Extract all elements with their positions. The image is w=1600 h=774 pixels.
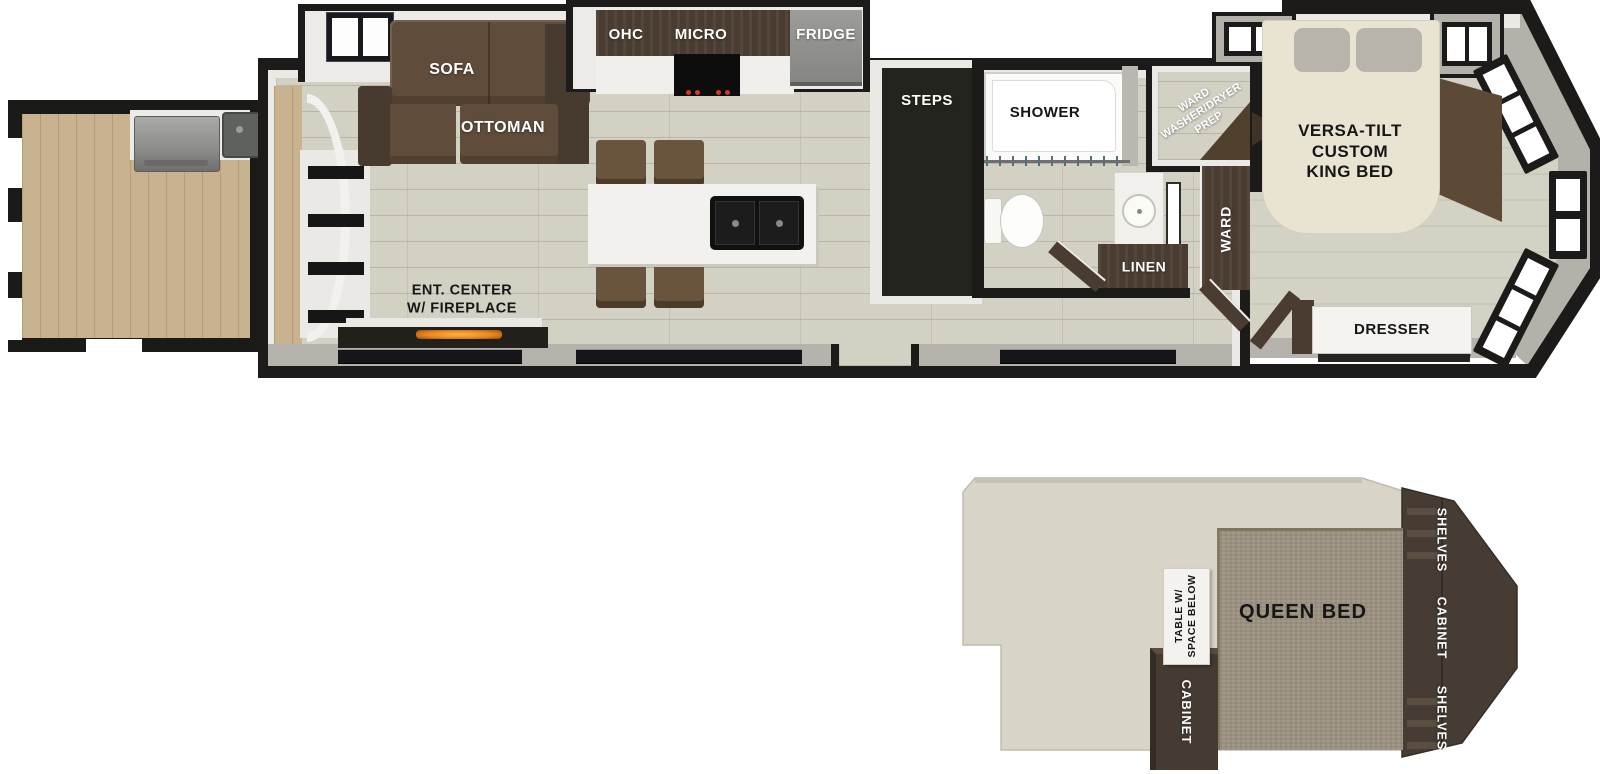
entry-door-panel [308, 214, 364, 227]
vanity-sink-drain [1137, 209, 1142, 214]
toilet-bowl [1000, 194, 1044, 248]
fireplace-flame [416, 330, 502, 339]
doorway-post [911, 344, 919, 366]
bay-window-mid [1549, 171, 1587, 259]
stove-burner [686, 90, 691, 95]
dresser [1312, 306, 1472, 354]
stove-burner [695, 90, 700, 95]
loft-cabinet [1150, 648, 1218, 770]
bathroom-wall [976, 288, 1190, 298]
deck-rail-gap [8, 298, 22, 340]
shower-curtain-hooks [986, 156, 1128, 166]
window [1000, 349, 1176, 364]
chair [654, 140, 704, 186]
steps [882, 68, 972, 296]
deck-rail-gap [8, 138, 22, 188]
overhead-cabinet [596, 10, 794, 56]
mirror [1166, 182, 1181, 246]
deck-rail-gap [8, 222, 22, 272]
fridge [790, 10, 862, 86]
linen-cabinet [1098, 244, 1188, 288]
deck-sink-faucet [236, 126, 243, 133]
grill-handle [144, 160, 208, 166]
pillow [1294, 28, 1350, 72]
entry-door-panel [308, 262, 364, 275]
ottoman [460, 104, 558, 164]
chair [596, 262, 646, 308]
loft-shelf-unit [1402, 488, 1517, 757]
rv-floorplan: SOFA OTTOMAN OHC MICRO FRIDGE ENT. CENTE… [0, 0, 1600, 774]
sofa-armrest [358, 86, 392, 166]
chair [654, 262, 704, 308]
nightstand [1292, 300, 1314, 354]
sink-basin [759, 201, 799, 245]
dresser-base [1318, 354, 1470, 362]
queen-bed [1217, 528, 1403, 750]
window [326, 12, 394, 62]
loft-table [1163, 568, 1210, 665]
sink-basin [715, 201, 755, 245]
stove-burner [716, 90, 721, 95]
stove [674, 54, 740, 96]
shower-pan-inner [992, 80, 1116, 152]
stove-burner [725, 90, 730, 95]
shower-wall [1122, 66, 1138, 166]
sofa-seam [488, 22, 490, 104]
window [338, 349, 522, 364]
window [576, 349, 802, 364]
main-entry-doorway [839, 344, 911, 366]
chair [596, 140, 646, 186]
pillow [1356, 28, 1422, 72]
entry-wood-floor [274, 86, 302, 344]
entry-door-panel [308, 166, 364, 179]
ent-center-shelf [346, 318, 542, 327]
deck-rail-gap [86, 339, 142, 352]
island-sink [710, 196, 804, 250]
doorway-post [831, 344, 839, 366]
bathroom-wall [972, 60, 984, 298]
sofa-chaise [390, 104, 456, 164]
